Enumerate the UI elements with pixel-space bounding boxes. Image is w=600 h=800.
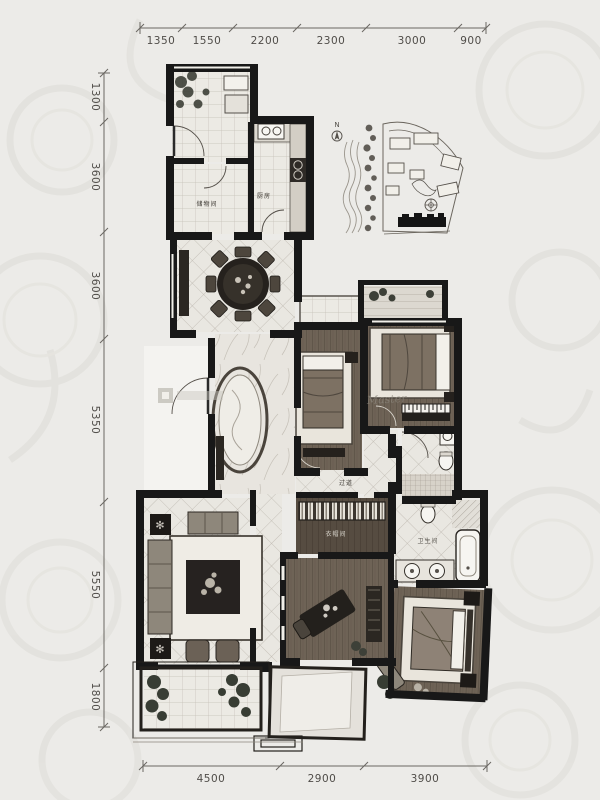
balcony-right-sheen: [280, 672, 352, 732]
label-cloakroom: 衣帽间: [325, 530, 346, 538]
patio-floor: [300, 296, 360, 324]
living-armchair-2: [216, 640, 239, 662]
dim-left-3: 3600: [89, 272, 101, 301]
watermark-smudge: [177, 391, 223, 400]
dim-left-6: 1800: [89, 683, 101, 712]
site-highlight-building: [398, 213, 446, 227]
bedroom3-piano: [402, 404, 450, 421]
dim-left-4: 5350: [89, 406, 101, 435]
bedroom3-pillows: [436, 334, 450, 390]
svg-text:✻: ✻: [155, 643, 164, 656]
dim-top-1: 1350: [147, 35, 176, 47]
hall-console: [216, 436, 224, 480]
study-cabinet: [366, 586, 382, 642]
cloakroom-wardrobe: [299, 502, 385, 520]
floorplan-drawing: 1350 1550 2200 2300 3000 900 1300 3600 3…: [0, 0, 600, 800]
storage-floor: [172, 164, 250, 234]
living-armchair-1: [186, 640, 209, 662]
kitchen-stove: [290, 158, 306, 182]
dim-top-2: 1550: [193, 35, 222, 47]
exterior-landing: [144, 346, 208, 492]
bedroom2-bed: [303, 370, 343, 428]
watermark-script: Master: [365, 392, 407, 407]
dim-top-3: 2200: [251, 35, 280, 47]
floorplan-page: 1350 1550 2200 2300 3000 900 1300 3600 3…: [0, 0, 600, 800]
bedroom2-dresser: [303, 448, 345, 457]
master-nightstand-2: [460, 673, 477, 688]
dim-left-2: 3600: [89, 163, 101, 192]
dining-table-set: [206, 247, 280, 321]
entry-cabinet-2: [225, 95, 248, 113]
label-corridor: 过道: [339, 479, 353, 487]
svg-text:✻: ✻: [155, 519, 164, 532]
bedroom3-nightstand-2: [444, 392, 455, 402]
dim-left-5: 5550: [89, 571, 101, 600]
dining-sideboard: [179, 250, 189, 316]
dim-bottom-3: 3900: [411, 773, 440, 785]
bedroom2-pillows: [303, 356, 343, 370]
label-bathroom: 卫生间: [417, 537, 438, 545]
entry-cabinet-1: [224, 76, 248, 90]
master-pillows: [451, 611, 466, 669]
master-bath-toilet: [421, 505, 435, 523]
label-storage: 储物间: [196, 200, 217, 208]
master-shower-floor: [452, 500, 482, 528]
north-label: N: [334, 121, 339, 129]
label-kitchen: 厨房: [257, 192, 271, 200]
master-nightstand-1: [464, 591, 481, 606]
living-sofa: [148, 540, 172, 634]
dim-top-4: 2300: [317, 35, 346, 47]
dim-bottom-2: 2900: [308, 773, 337, 785]
dim-left-1: 1300: [89, 83, 101, 112]
dim-top-6: 900: [460, 35, 482, 47]
living-bench: [188, 512, 238, 534]
dim-top-5: 3000: [398, 35, 427, 47]
bedroom2-nightstand: [345, 352, 358, 363]
dim-bottom-1: 4500: [197, 773, 226, 785]
